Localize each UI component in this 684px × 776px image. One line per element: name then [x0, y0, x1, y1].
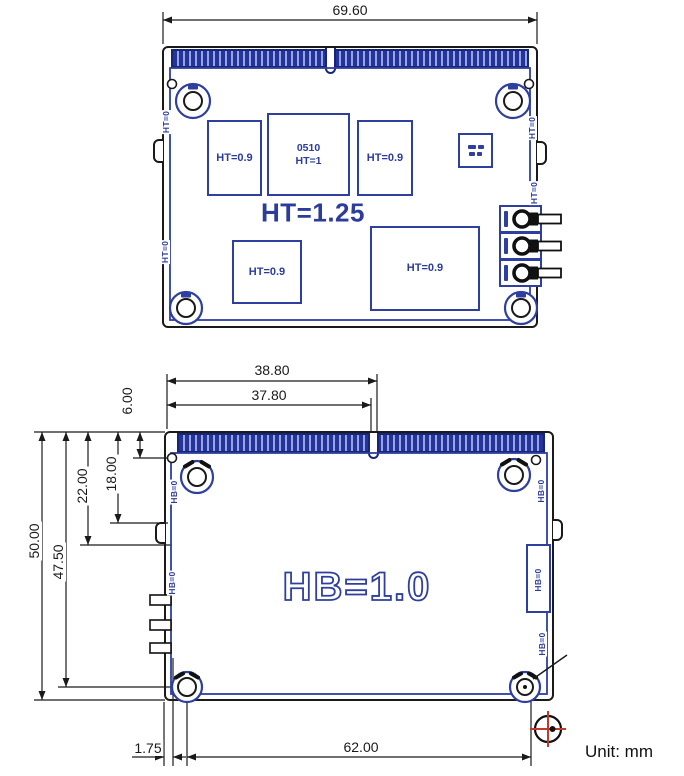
- side-notch-left: [156, 523, 165, 543]
- dim-label-width: 69.60: [330, 2, 369, 18]
- index-hole: [168, 454, 177, 463]
- side-notch-left: [154, 140, 163, 162]
- edge-height-label: HB=0: [169, 479, 179, 504]
- component-box: HT=0.9: [207, 120, 262, 196]
- datum-target-symbol: [530, 711, 566, 747]
- dim-label-notch-near: 37.80: [249, 387, 288, 403]
- mounting-hole: [176, 84, 210, 118]
- connector-pin: [150, 643, 171, 653]
- mounting-hole: [505, 292, 537, 324]
- edge-height-label: HT=0: [160, 240, 170, 264]
- component-box: HT=0.9: [232, 240, 302, 304]
- dim-label-step-bottom: 22.00: [74, 466, 90, 505]
- side-notch-right: [553, 520, 562, 540]
- component-box: HT=0.9: [370, 226, 480, 311]
- connector-pin: [150, 620, 171, 630]
- dim-label-edge-to-hole: 1.75: [132, 740, 163, 756]
- mounting-hole: [172, 672, 202, 702]
- component-label: HT=1: [296, 155, 322, 167]
- index-hole: [525, 80, 534, 89]
- dim-label-hole-span: 62.00: [341, 739, 380, 755]
- leader-line: [533, 655, 567, 679]
- dim-label-hole-row: 47.50: [50, 542, 66, 581]
- component-box: HT=0.9: [357, 120, 413, 196]
- dim-label-conn-offset: 6.00: [119, 385, 135, 416]
- mounting-hole: [496, 84, 530, 118]
- dim-label-notch-far: 38.80: [252, 362, 291, 378]
- component-label: HT=0.9: [367, 152, 403, 165]
- connector-pin: [150, 595, 171, 605]
- connector-pin: [538, 242, 561, 251]
- component-box: 0510 HT=1: [267, 113, 350, 196]
- connector-pin: [538, 215, 561, 224]
- edge-height-label: HB=0: [533, 567, 543, 592]
- unit-note: Unit: mm: [585, 742, 653, 762]
- index-hole: [532, 456, 541, 465]
- component-box-small: [458, 133, 493, 168]
- side-notch-right: [537, 142, 546, 164]
- component-label: HT=0.9: [249, 266, 285, 279]
- edge-height-label: HT=0: [527, 116, 537, 140]
- micro-text-lines: [468, 145, 484, 156]
- coax-connector: [500, 206, 561, 232]
- coax-connectors: [500, 206, 561, 286]
- dim-label-height: 50.00: [26, 521, 42, 560]
- mounting-hole: [181, 461, 213, 493]
- edge-height-label: HT=0: [161, 110, 171, 134]
- edge-height-label: HB=0: [167, 570, 177, 595]
- board-height-label: HB=1.0: [283, 565, 432, 609]
- edge-height-label: HT=0: [529, 181, 539, 205]
- coax-connector: [500, 233, 561, 259]
- coax-connector: [500, 260, 561, 286]
- mechanical-drawing-page: HB=1.0 69.60 HT=0.9 0510 HT=1 HT=0.9 HT=…: [0, 0, 684, 776]
- board-height-label-top-view: HT=1.25: [261, 198, 365, 229]
- edge-height-label: HB=0: [536, 478, 546, 503]
- index-hole: [168, 80, 177, 89]
- component-label: HT=0.9: [407, 262, 443, 275]
- component-label: HT=0.9: [216, 152, 252, 165]
- dim-label-step-top: 18.00: [103, 454, 119, 493]
- component-label: 0510: [297, 142, 320, 154]
- mounting-hole: [170, 292, 202, 324]
- connector-pin: [538, 269, 561, 278]
- edge-height-label: HB=0: [537, 631, 547, 656]
- mounting-hole: [498, 459, 530, 491]
